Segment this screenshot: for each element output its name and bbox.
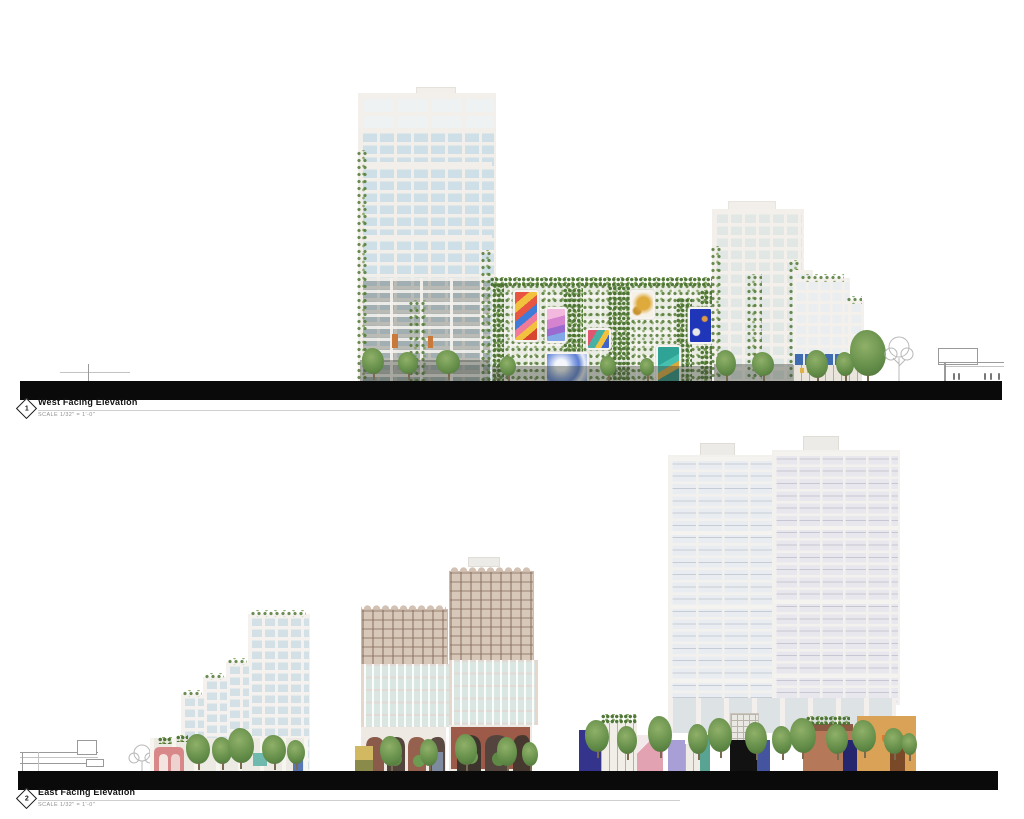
street-tree	[902, 733, 917, 755]
street-tree	[852, 720, 876, 752]
street-tree	[826, 724, 848, 754]
street-tree	[398, 352, 418, 374]
street-tree	[186, 734, 210, 764]
context-canopy-line	[938, 362, 1004, 363]
street-tree	[362, 348, 384, 374]
elevation-drawing-sheet: 1 West Facing Elevation SCALE 1/32" = 1'…	[0, 0, 1024, 819]
title-underline	[38, 800, 680, 801]
street-tree	[648, 716, 672, 752]
pedestrian-figure	[953, 373, 955, 380]
terrace-greenery	[800, 274, 844, 282]
terrace-greenery	[182, 690, 202, 697]
arched-tower-glass-body	[361, 664, 452, 727]
vegetation-column	[356, 150, 368, 381]
tower-floor-band	[358, 162, 492, 166]
elevation-title: West Facing Elevation	[38, 397, 138, 407]
street-tree	[772, 726, 792, 754]
pedestrian-figure	[958, 373, 960, 380]
context-post	[22, 752, 23, 771]
street-tree	[287, 740, 305, 764]
street-tree	[522, 742, 538, 766]
tower-crown	[358, 93, 496, 132]
stepped-building-main	[793, 278, 850, 356]
elevation-marker: 1	[16, 398, 37, 419]
context-slab-line	[20, 757, 98, 758]
context-post	[944, 363, 946, 381]
green-roof	[601, 714, 637, 724]
street-tree	[790, 718, 816, 753]
street-building-lavender	[668, 740, 685, 771]
facade-accent	[428, 336, 433, 348]
large-tower-east-wing	[772, 450, 900, 705]
ground-line	[20, 381, 1002, 400]
street-tree	[688, 724, 708, 754]
arched-tower-crown	[361, 609, 448, 666]
street-tree	[617, 726, 637, 754]
street-tree	[640, 358, 654, 376]
street-tree	[420, 739, 438, 766]
street-tree	[716, 350, 736, 376]
pedestrian-figure	[984, 373, 986, 380]
pedestrian-figure	[990, 373, 992, 380]
mural-artwork-red-abstract	[513, 290, 539, 342]
street-tree	[228, 728, 254, 763]
context-post	[38, 752, 39, 771]
pedestrian-figure	[998, 373, 1000, 380]
arched-tower-glass-body	[449, 660, 538, 725]
terrace-greenery	[204, 673, 224, 680]
context-pipe	[86, 759, 104, 767]
terrace-greenery	[250, 610, 306, 617]
street-tree	[455, 734, 477, 765]
street-tree	[380, 736, 402, 766]
title-underline	[38, 410, 680, 411]
arched-tower-crown	[449, 571, 534, 662]
street-tree	[497, 737, 517, 766]
street-tree	[745, 722, 767, 754]
street-tree	[585, 720, 609, 752]
ground-line	[18, 771, 998, 790]
large-tower-west-wing	[668, 455, 776, 705]
street-tree	[436, 350, 460, 374]
terrace-greenery	[846, 296, 862, 304]
facade-accent	[392, 334, 398, 348]
street-tree	[600, 356, 616, 376]
tower-floor-band	[358, 235, 492, 239]
large-street-tree	[850, 330, 886, 376]
scale-note: SCALE 1/32" = 1'-0"	[38, 802, 95, 808]
street-tree	[884, 728, 904, 754]
storefront-yellow	[355, 746, 373, 771]
elevation-marker: 2	[16, 788, 37, 809]
mural-artwork-pink-swirl	[545, 307, 567, 343]
street-tree	[806, 350, 828, 378]
context-structure-box	[77, 740, 97, 755]
street-tree	[752, 352, 774, 376]
pink-arched-pavilion	[152, 745, 186, 771]
mural-artwork-gold	[630, 290, 655, 319]
elevation-number: 2	[25, 795, 29, 802]
elevation-number: 1	[25, 405, 29, 412]
context-canopy-line	[946, 366, 1004, 367]
street-tree	[262, 735, 286, 764]
terrace-greenery	[227, 658, 247, 665]
context-wall-line	[60, 372, 130, 373]
street-tree	[708, 718, 732, 752]
elevation-title: East Facing Elevation	[38, 787, 135, 797]
scalloped-parapet	[361, 602, 446, 609]
planter-greenery	[158, 737, 172, 744]
context-wall-post	[88, 364, 89, 381]
street-tree	[500, 356, 516, 376]
line-drawn-tree	[884, 334, 914, 381]
mural-artwork-multicolor	[586, 328, 611, 350]
rooftop-element	[468, 557, 500, 567]
scale-note: SCALE 1/32" = 1'-0"	[38, 412, 95, 418]
